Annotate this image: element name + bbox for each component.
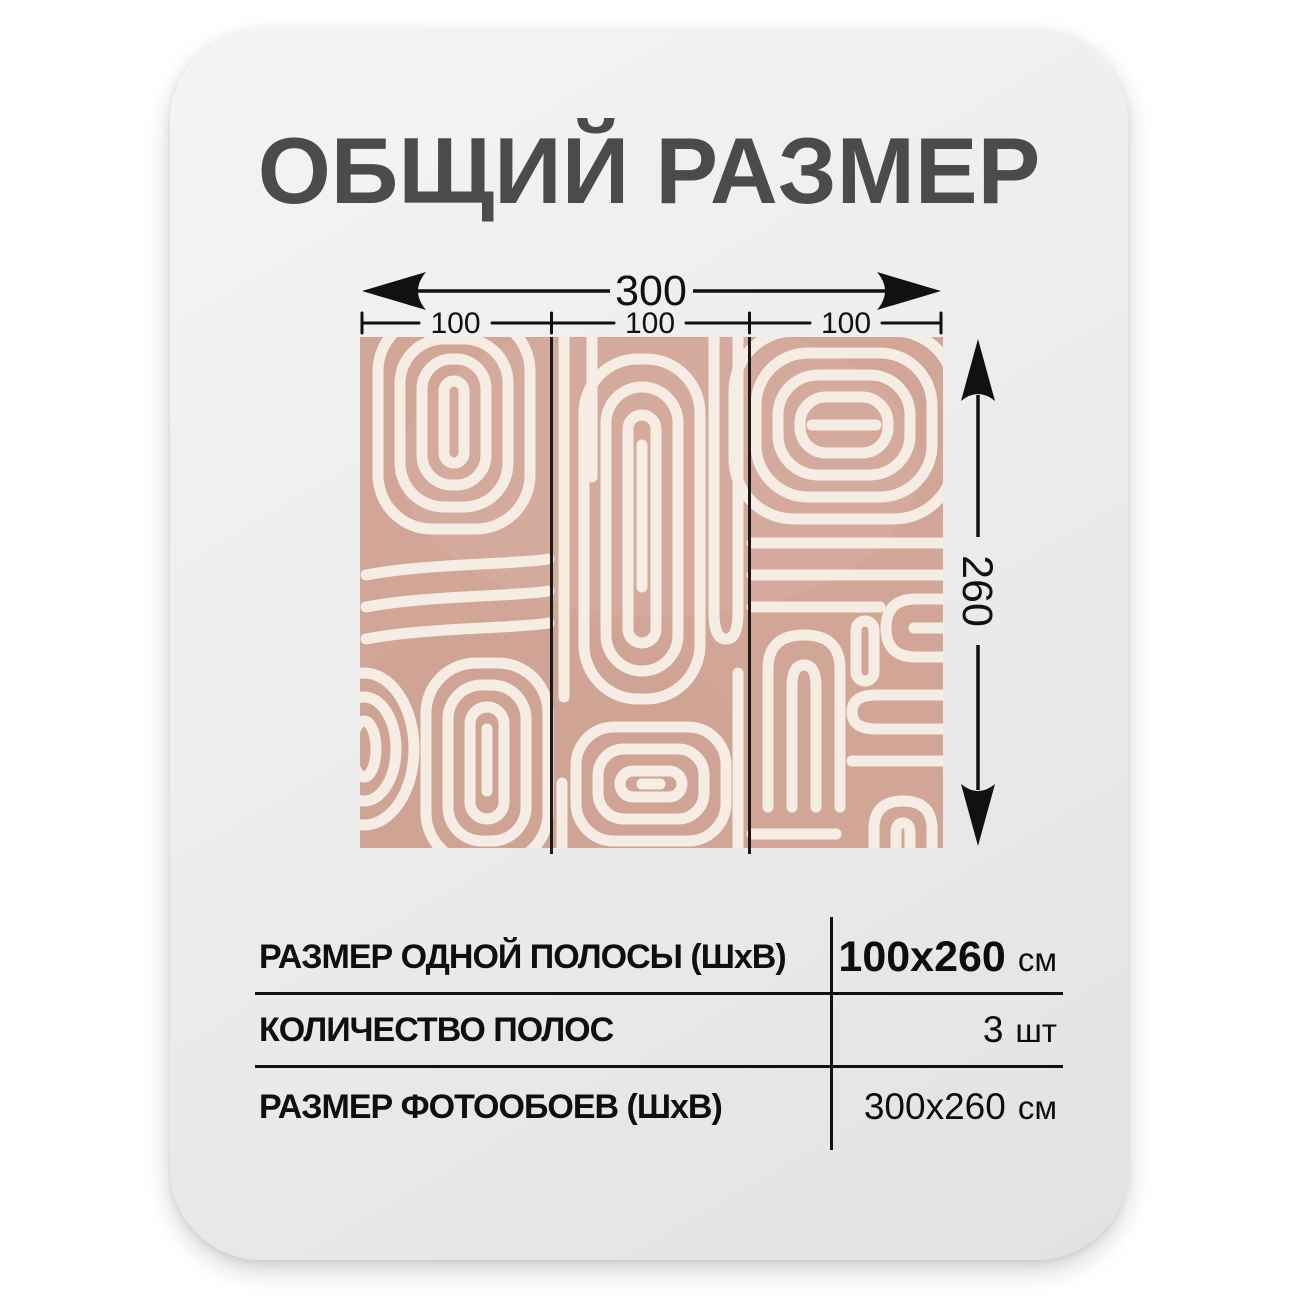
value-number: 300x260 [864,1086,1006,1127]
value-number: 100x260 [838,933,1005,981]
table-row: РАЗМЕР ФОТООБОЕВ (ШхВ) 300x260см [255,1068,1063,1146]
page-title: ОБЩИЙ РАЗМЕР [170,124,1128,218]
value-unit: см [1018,1089,1057,1126]
segment-label-2: 100 [625,307,675,340]
table-column-divider [830,917,833,1150]
value-unit: см [1018,941,1057,978]
row-value: 3шт [830,1009,1063,1051]
height-dimension: 260 [957,337,999,848]
row-value: 300x260см [830,1086,1063,1128]
infographic-page: ОБЩИЙ РАЗМЕР 300 100 100 100 [0,0,1300,1300]
segment-label-1: 100 [430,307,480,340]
arrow-down-icon [961,784,995,846]
value-number: 3 [983,1009,1004,1050]
arrow-up-icon [961,339,995,401]
row-label: КОЛИЧЕСТВО ПОЛОС [255,1011,830,1050]
spec-table: РАЗМЕР ОДНОЙ ПОЛОСЫ (ШхВ) 100x260см КОЛИ… [255,922,1063,1146]
segment-dimension: 100 100 100 [360,303,943,339]
row-label: РАЗМЕР ОДНОЙ ПОЛОСЫ (ШхВ) [255,938,830,977]
wallpaper-pattern-preview [360,337,943,848]
table-row: РАЗМЕР ОДНОЙ ПОЛОСЫ (ШхВ) 100x260см [255,922,1063,995]
value-unit: шт [1015,1012,1057,1049]
table-row: КОЛИЧЕСТВО ПОЛОС 3шт [255,995,1063,1068]
row-label: РАЗМЕР ФОТООБОЕВ (ШхВ) [255,1088,830,1127]
height-label: 260 [953,555,1001,627]
row-value: 100x260см [830,933,1063,982]
segment-label-3: 100 [821,307,871,340]
